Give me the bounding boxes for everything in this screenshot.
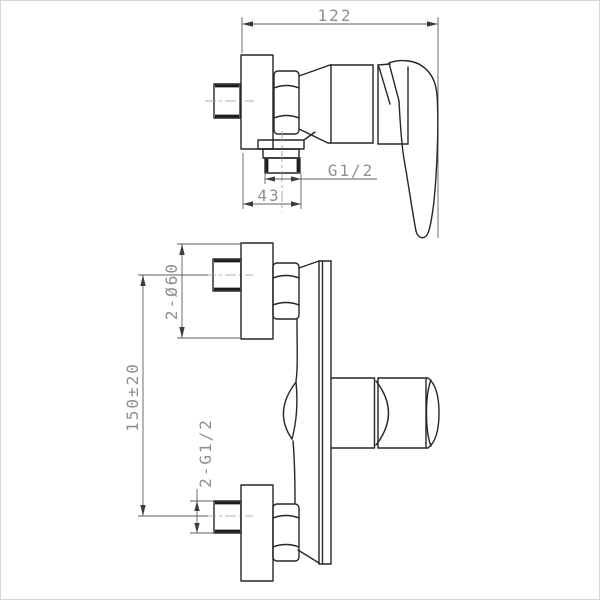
drawing-canvas: 122 <box>0 0 600 600</box>
front-top-flange <box>241 243 273 339</box>
front-view: 2-Ø60 150±20 2-G1/2 <box>123 243 439 581</box>
front-top-hex-nut <box>273 263 299 319</box>
front-handle <box>331 378 439 448</box>
dim-inlet-spacing-label: 150±20 <box>123 362 142 432</box>
front-bottom-inlet <box>214 501 241 533</box>
side-outlet <box>258 132 315 173</box>
front-body-contour <box>283 319 297 503</box>
front-bottom-flange <box>241 485 273 581</box>
faucet-technical-drawing: 122 <box>1 1 599 599</box>
side-view: 122 <box>205 6 438 238</box>
dim-outlet-offset-label: 43 <box>257 186 280 205</box>
side-flange <box>241 55 273 149</box>
dim-overall-depth-label: 122 <box>318 6 353 25</box>
front-bottom-hex-nut <box>273 504 299 561</box>
front-body-plate <box>298 261 331 564</box>
dim-inlet-thread-label: 2-G1/2 <box>196 418 215 488</box>
side-hex-nut <box>274 71 299 134</box>
dim-flange-diameter-label: 2-Ø60 <box>162 262 181 320</box>
dim-outlet-thread-label: G1/2 <box>328 161 375 180</box>
